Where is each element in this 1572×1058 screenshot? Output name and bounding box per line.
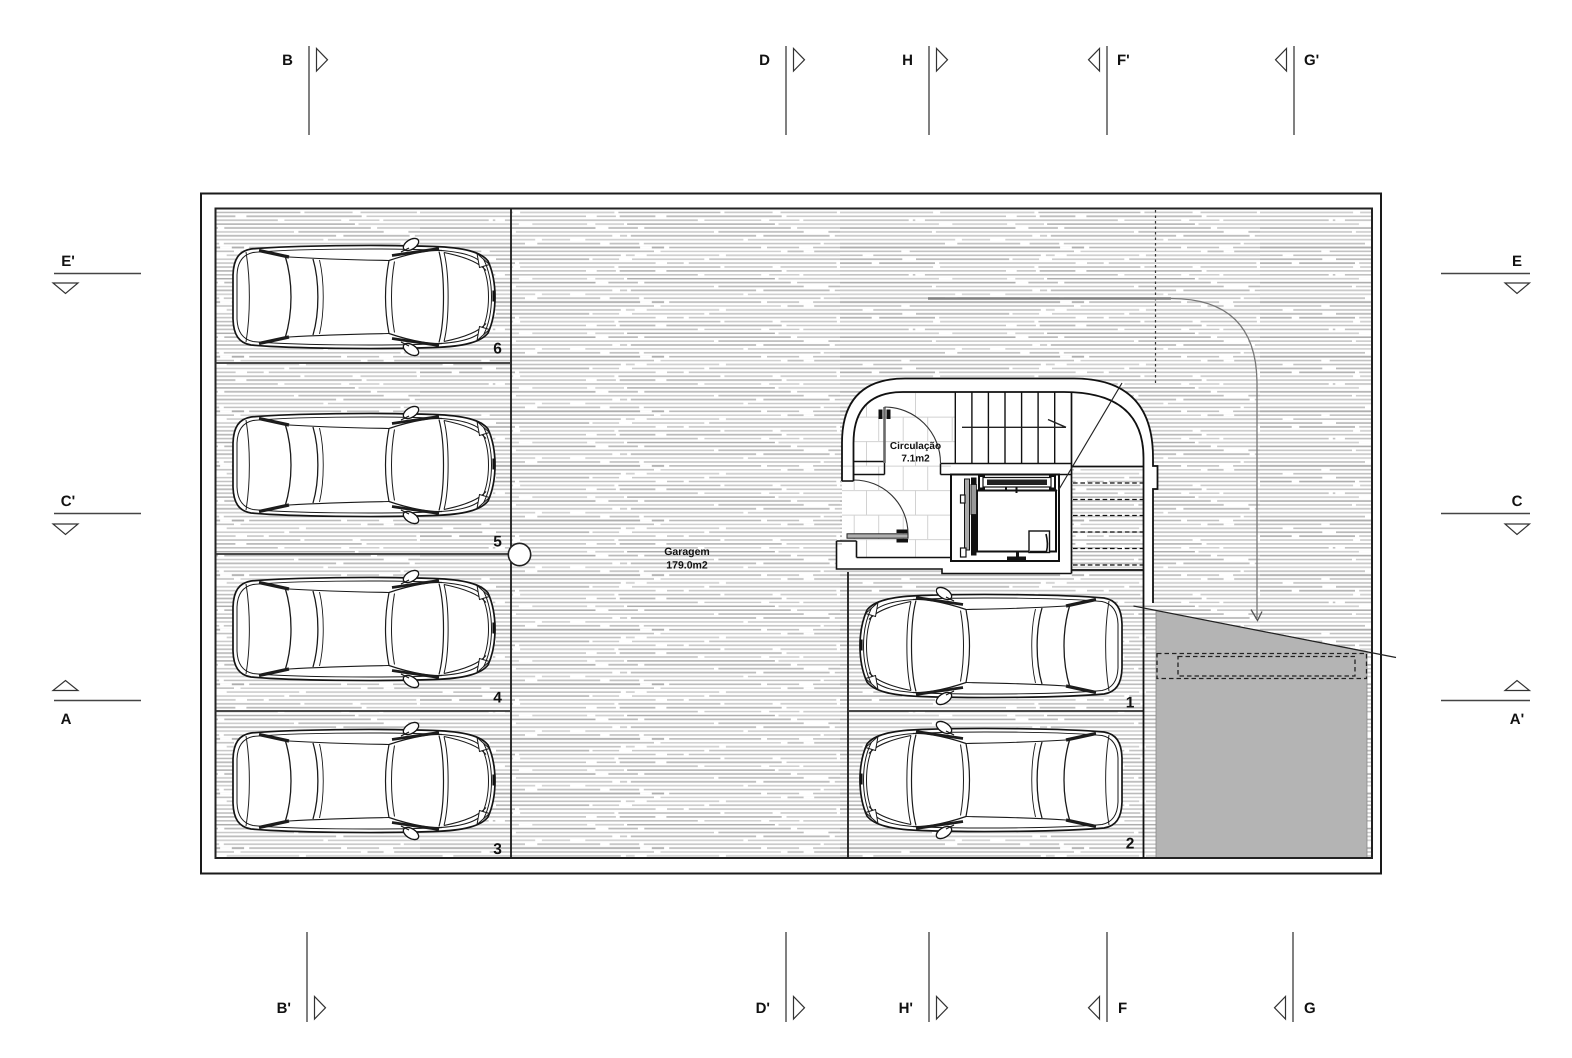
svg-text:H: H <box>902 52 913 69</box>
svg-text:5: 5 <box>493 534 502 551</box>
svg-text:A': A' <box>1510 711 1524 728</box>
svg-text:3: 3 <box>493 841 502 858</box>
svg-text:F': F' <box>1117 52 1130 69</box>
svg-text:F: F <box>1118 1000 1127 1017</box>
svg-text:D: D <box>759 52 770 69</box>
svg-text:C: C <box>1512 493 1523 510</box>
svg-text:E': E' <box>61 253 75 270</box>
svg-text:Circulação: Circulação <box>890 441 941 452</box>
svg-text:6: 6 <box>493 341 502 358</box>
svg-text:B: B <box>282 52 293 69</box>
svg-text:C': C' <box>61 493 75 510</box>
svg-text:E: E <box>1512 253 1522 270</box>
svg-text:A: A <box>61 711 72 728</box>
svg-text:H': H' <box>899 1000 913 1017</box>
svg-text:B': B' <box>277 1000 291 1017</box>
svg-text:G': G' <box>1304 52 1319 69</box>
svg-text:1: 1 <box>1126 695 1135 712</box>
svg-text:G: G <box>1304 1000 1316 1017</box>
svg-text:4: 4 <box>493 690 502 707</box>
svg-text:Garagem: Garagem <box>664 546 710 558</box>
svg-text:179.0m2: 179.0m2 <box>666 560 708 572</box>
svg-text:7.1m2: 7.1m2 <box>901 454 930 465</box>
svg-text:2: 2 <box>1126 836 1135 853</box>
svg-text:D': D' <box>756 1000 770 1017</box>
